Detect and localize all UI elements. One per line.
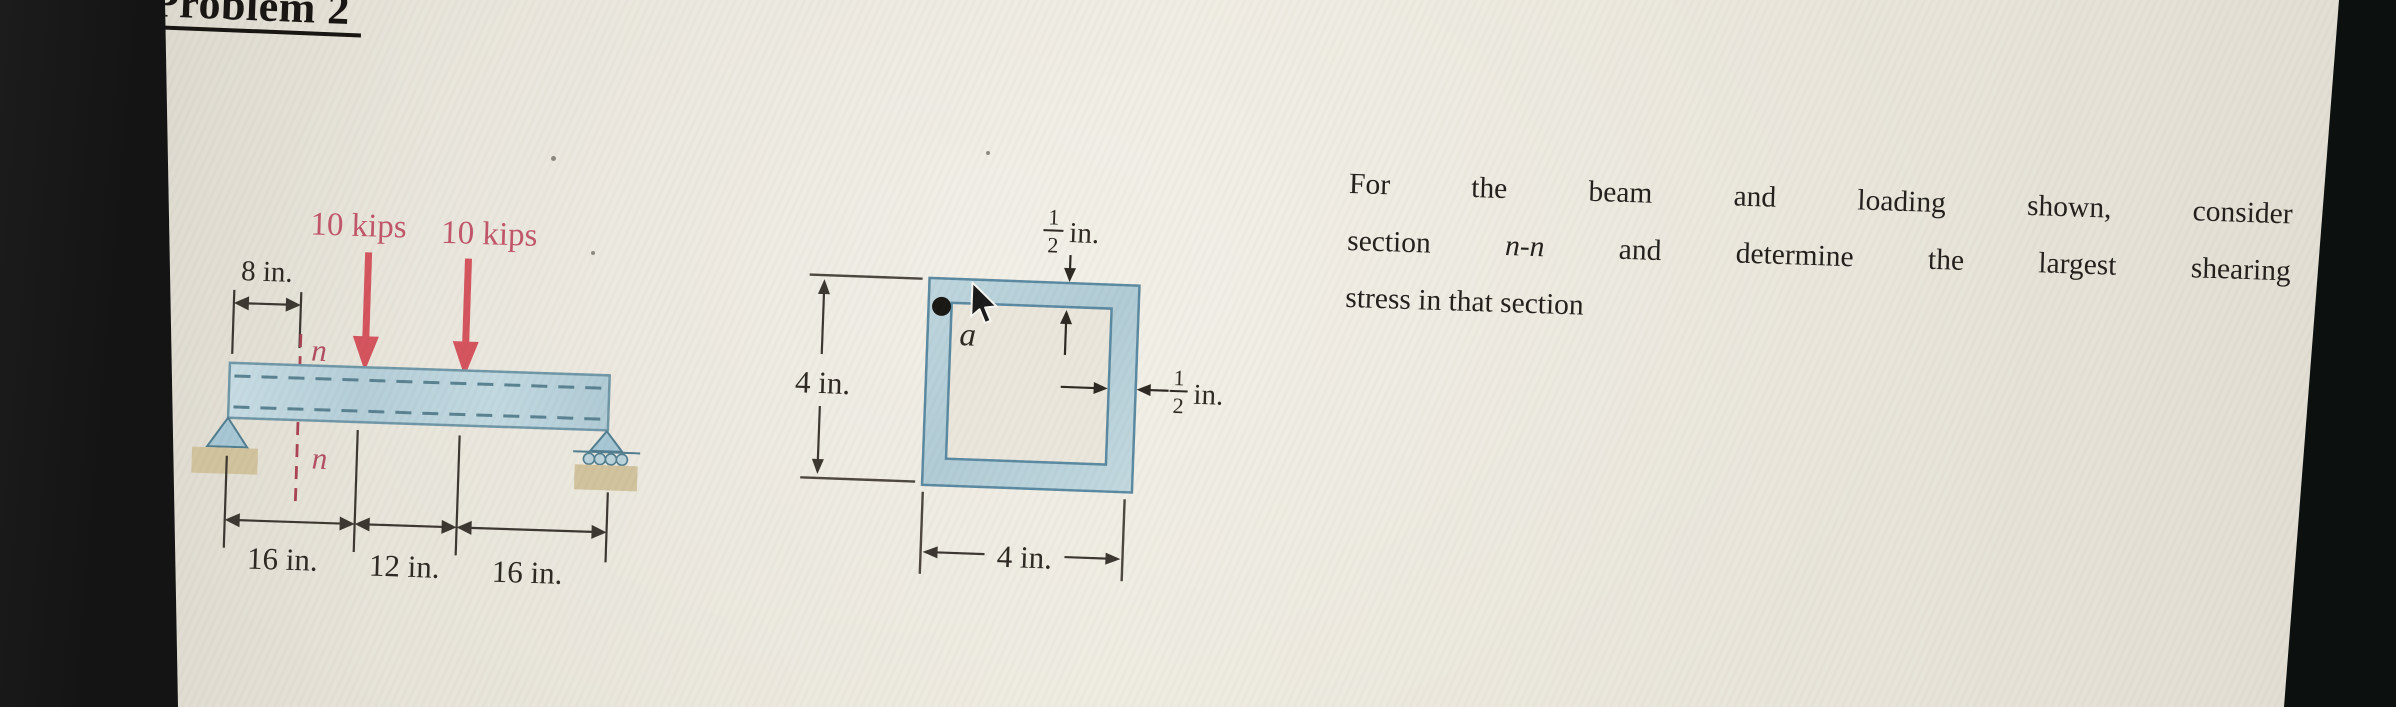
right-thickness-unit: in. — [1193, 379, 1224, 412]
height-dim-label: 4 in. — [795, 364, 851, 401]
roller-support — [572, 430, 641, 491]
dust-speck — [551, 156, 556, 161]
section-label-bottom: n — [311, 441, 328, 476]
load-label-1: 10 kips — [310, 206, 407, 245]
top-thickness-denominator: 2 — [1047, 232, 1059, 257]
height-dimension: 4 in. — [792, 274, 923, 481]
span-dim-middle: 12 in. — [368, 548, 440, 585]
beam-diagram: 10 kips 10 kips 8 in. — [164, 118, 705, 615]
span-dimensions — [224, 513, 606, 540]
width-dim-arrow-right — [1105, 553, 1120, 566]
load-arrow-2 — [452, 258, 482, 377]
tube-section — [922, 278, 1139, 493]
roller-wheels — [583, 453, 627, 465]
width-dim-label: 4 in. — [996, 539, 1052, 576]
page-title: Problem 2 — [149, 0, 363, 37]
right-dim-arrow-outer — [1136, 384, 1150, 397]
pin-support-pad — [191, 447, 258, 475]
problem-line-3-text: stress in that section — [1345, 282, 1584, 322]
offset-dim-label: 8 in. — [241, 255, 294, 289]
load-label-2: 10 kips — [441, 215, 538, 254]
point-a-label: a — [959, 317, 977, 354]
width-dimension: 4 in. — [920, 492, 1125, 581]
beam-body — [228, 363, 610, 431]
top-thickness-unit: in. — [1069, 217, 1100, 250]
cross-section-diagram: a 1 2 in. 1 2 in. — [752, 128, 1279, 626]
section-label-top: n — [311, 332, 328, 367]
right-thickness-denominator: 2 — [1172, 393, 1184, 418]
slide-page: Problem 2 10 kips 10 kips — [0, 0, 2396, 707]
span-dim-right: 16 in. — [491, 554, 563, 591]
problem-line-2-pre: section — [1347, 225, 1432, 260]
pin-support — [191, 417, 259, 475]
top-thickness-numerator: 1 — [1048, 204, 1060, 229]
section-name-italic: n-n — [1505, 230, 1545, 263]
roller-support-pad — [574, 464, 638, 491]
span-dim-left: 16 in. — [247, 540, 319, 577]
load-labels: 10 kips 10 kips — [310, 206, 538, 254]
page-title-text: Problem 2 — [149, 0, 363, 37]
span-dimension-labels: 16 in. 12 in. 16 in. — [246, 540, 563, 590]
dust-speck — [591, 251, 595, 255]
load-arrow-1 — [352, 252, 382, 372]
screen-photo: Problem 2 10 kips 10 kips — [0, 0, 2396, 707]
top-dim-arrow-down — [1064, 268, 1077, 282]
dust-speck — [986, 151, 990, 155]
height-dim-arrow-down — [811, 459, 824, 474]
problem-statement: For the beam and loading shown, consider… — [1344, 156, 2293, 357]
offset-dimension: 8 in. — [232, 255, 302, 356]
right-thickness-numerator: 1 — [1173, 365, 1185, 390]
problem-line-2-post: and determine the largest shearing — [1618, 234, 2291, 288]
